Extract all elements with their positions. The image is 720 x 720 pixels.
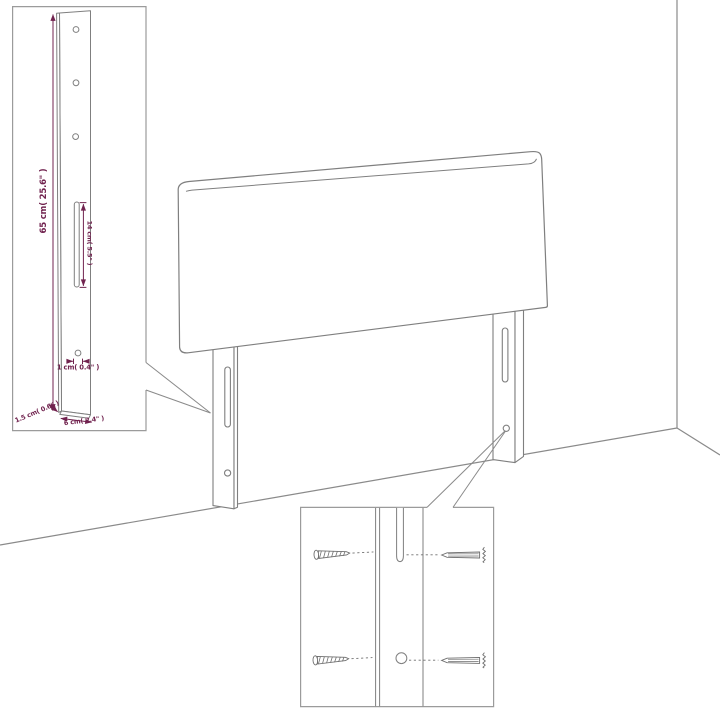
screw-shaft <box>317 655 349 664</box>
headboard-dimension-diagram: 65 cm( 25.6" ) 14 cm( 5.5" ) 1 cm( 0.4" … <box>0 0 720 720</box>
machine-bolt-icon-bottom <box>442 653 486 668</box>
floor-line-left <box>0 428 677 545</box>
inset-leg-screw-hole-2 <box>73 80 79 86</box>
right-leg-side-face <box>515 305 524 462</box>
dim-label-hole-diameter: 1 cm( 0.4" ) <box>57 365 99 372</box>
wood-screw-icon-top <box>314 547 374 559</box>
headboard-panel <box>178 152 547 353</box>
callout-leg-lower <box>146 390 211 413</box>
bolt-shaft <box>442 657 480 663</box>
strip-hole <box>396 653 407 664</box>
floor-line-right <box>677 428 720 455</box>
right-leg-hole <box>503 425 509 431</box>
right-leg-slot <box>502 328 508 382</box>
bolt-head-profile <box>483 547 486 562</box>
wood-screw-icon-bottom <box>313 653 373 665</box>
inset-mounting-detail <box>301 507 494 706</box>
left-leg-hole <box>225 470 231 476</box>
callout-lines <box>146 363 505 508</box>
callout-mount-right <box>453 431 505 507</box>
inset-leg-screw-hole-1 <box>73 27 79 33</box>
left-leg <box>213 342 238 509</box>
left-leg-side-face <box>234 342 238 509</box>
screw-shaft <box>318 549 350 558</box>
screw-guide-dashes <box>352 552 373 553</box>
screw-guide-dashes <box>351 658 372 659</box>
inset-mount-leg-strip <box>376 508 423 706</box>
inset-leg-screw-hole-3 <box>73 134 79 140</box>
diagram-artwork <box>0 0 720 720</box>
machine-bolt-icon-top <box>442 547 486 562</box>
dim-label-slot-length: 14 cm( 5.5" ) <box>86 221 93 266</box>
inset-leg-slot <box>74 202 79 287</box>
dim-label-leg-height: 65 cm( 25.6" ) <box>40 169 49 234</box>
strip-slot <box>397 508 404 562</box>
inset-leg-bottom-hole <box>75 350 81 356</box>
inset-leg-drawing <box>57 11 91 418</box>
left-leg-front-face <box>213 342 234 509</box>
bolt-head-profile <box>483 653 486 668</box>
panel-outline <box>178 152 547 353</box>
callout-leg-upper <box>146 363 211 414</box>
left-leg-slot <box>225 367 231 427</box>
right-leg <box>493 305 524 462</box>
bolt-shaft <box>442 552 480 558</box>
